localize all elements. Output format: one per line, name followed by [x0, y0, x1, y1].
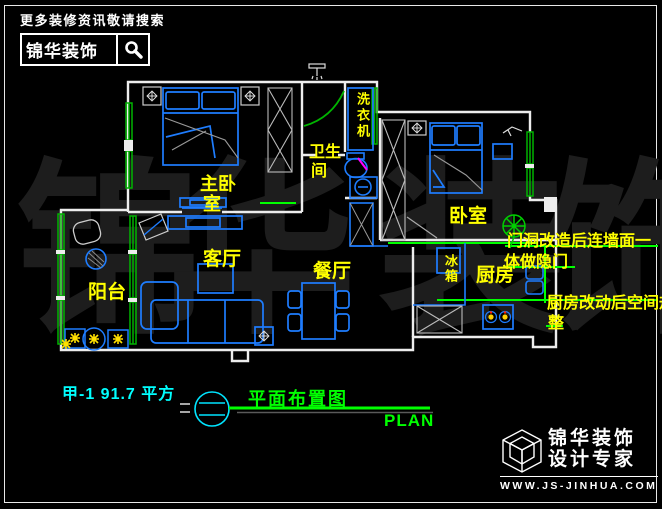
- flue-shaft: [417, 306, 462, 333]
- header-slogan: 更多装修资讯敬请搜索: [20, 10, 165, 29]
- master-nightstands: [143, 87, 259, 105]
- cube-logo-icon: [500, 428, 544, 474]
- drawing-title-en: PLAN: [384, 411, 434, 431]
- dining-furniture: [288, 283, 349, 339]
- search-icon: [116, 35, 148, 64]
- sofa: [141, 282, 263, 343]
- annotation-kitchen-change: 整: [548, 309, 564, 333]
- speaker: [139, 214, 168, 240]
- label-bathroom: 间: [311, 157, 327, 181]
- entry-door-swing: [407, 217, 437, 238]
- brand-name: 锦华装饰: [22, 35, 116, 64]
- label-master-bedroom: 室: [203, 190, 221, 216]
- logo-divider: [500, 476, 658, 477]
- label-living-room: 客厅: [203, 244, 241, 271]
- logo-tagline: 设计专家: [548, 449, 636, 470]
- balcony-table: [86, 249, 106, 269]
- caster-symbol: [245, 91, 255, 101]
- bedroom2-blanket: [434, 155, 482, 190]
- master-bed-blanket: [165, 118, 238, 158]
- drawing-title: 平面布置图: [248, 385, 348, 411]
- shower-curtain-arc: [304, 91, 344, 126]
- annotation-kitchen-change: 厨房改动后空间规: [547, 289, 662, 313]
- master-bed: [163, 88, 238, 165]
- caster-symbol: [412, 123, 422, 133]
- balcony-chair: [72, 218, 103, 246]
- label-balcony: 阳台: [88, 277, 126, 304]
- brand-header: 更多装修资讯敬请搜索 锦华装饰: [20, 10, 165, 66]
- bedroom2-nightstand: [493, 144, 512, 159]
- kitchen-sink: [526, 281, 543, 294]
- caster-symbol: [259, 331, 269, 341]
- bedroom2-wardrobe: [382, 120, 405, 240]
- brand-search-box: 锦华装饰: [20, 33, 150, 66]
- wall-fixture-icon: [503, 127, 522, 136]
- floorplan-image: 锦 华 装 饰 更多装修资讯敬请搜索 锦华装饰: [0, 0, 662, 509]
- vanity-sink: [350, 177, 377, 198]
- bedroom2-furniture: [382, 120, 525, 248]
- stove: [483, 305, 513, 329]
- label-bedroom: 卧室: [449, 201, 487, 228]
- company-logo-block: 锦华装饰 设计专家 WWW.JS-JINHUA.COM: [500, 428, 658, 492]
- tv-console: [168, 216, 242, 229]
- shower-head-icon: [309, 64, 325, 80]
- logo-website: WWW.JS-JINHUA.COM: [500, 480, 658, 492]
- unit-area-text: 甲-1 91.7 平方: [62, 380, 175, 404]
- dining-table: [302, 283, 335, 339]
- living-room-furniture: [141, 216, 273, 345]
- master-wardrobe: [268, 88, 292, 172]
- logo-brand: 锦华装饰: [548, 428, 636, 449]
- caster-symbol: [147, 91, 157, 101]
- label-washing-machine: 洗衣机: [353, 92, 372, 140]
- label-fridge: 冰箱: [441, 254, 460, 284]
- label-dining-room: 餐厅: [313, 256, 351, 283]
- annotation-hidden-door: 体做隐门: [504, 248, 568, 272]
